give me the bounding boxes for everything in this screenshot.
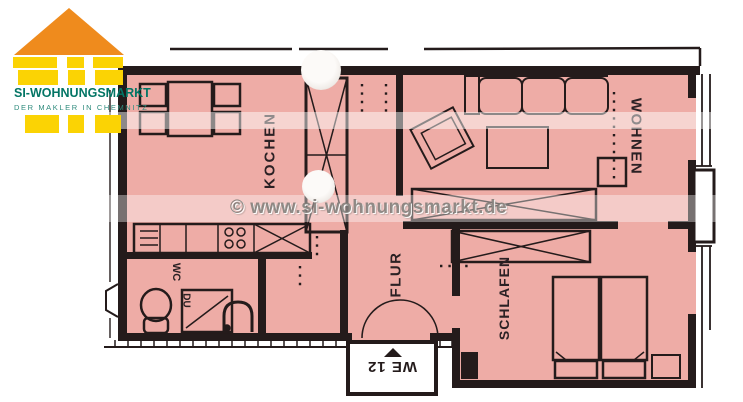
hole-punch-mark	[301, 50, 341, 90]
entrance-unit-box: WE 12	[346, 340, 438, 396]
logo-tagline: DER MAKLER IN CHEMNITZ	[14, 103, 140, 112]
unit-number-label: WE 12	[350, 358, 434, 375]
entrance-arrow-icon	[384, 348, 402, 357]
logo-block	[68, 115, 84, 133]
logo-house-roof-icon	[14, 8, 124, 55]
floorplan-scan: KOCHEN WOHNEN FLUR SCHLAFEN WC DU WE 12 …	[0, 0, 743, 402]
logo-block	[68, 70, 85, 85]
logo-company-name: SI-WOHNUNGSMARKT	[14, 86, 140, 100]
watermark-text: © www.si-wohnungsmarkt.de	[230, 197, 550, 219]
logo-block	[93, 57, 123, 68]
logo-block	[25, 115, 59, 133]
room-label-bedroom: SCHLAFEN	[496, 242, 512, 354]
broker-logo: SI-WOHNUNGSMARKT DER MAKLER IN CHEMNITZ	[8, 4, 140, 146]
logo-block	[95, 70, 123, 85]
room-label-wc: WC	[170, 258, 182, 286]
logo-block	[95, 115, 121, 133]
logo-block	[18, 70, 58, 85]
site-boundary-line	[170, 48, 700, 66]
room-label-shower: DU	[181, 289, 192, 313]
room-label-living: WOHNEN	[628, 87, 645, 187]
room-label-hall: FLUR	[388, 245, 405, 305]
logo-block	[13, 57, 57, 68]
logo-block	[67, 57, 84, 68]
